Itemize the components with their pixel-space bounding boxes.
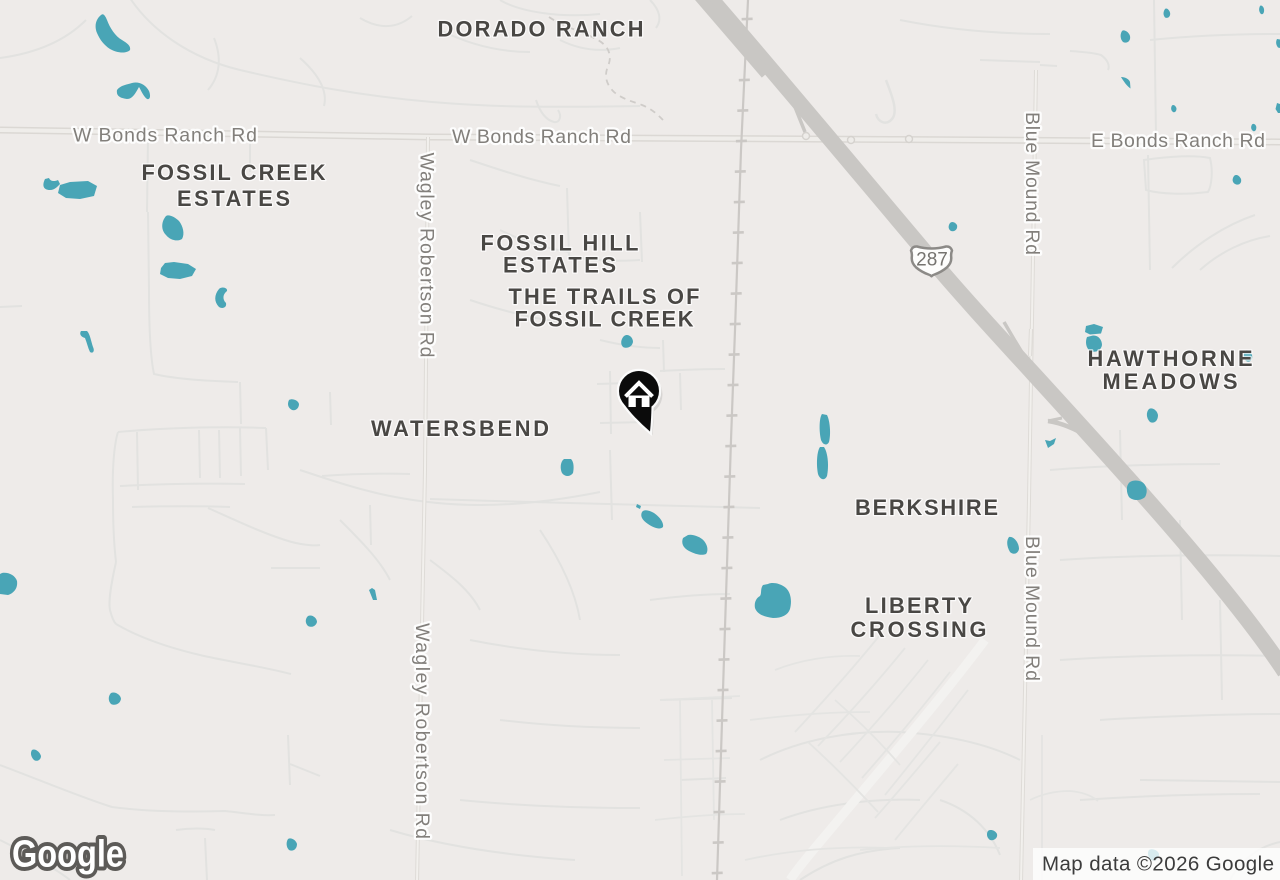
svg-text:THE TRAILS OF: THE TRAILS OF (509, 284, 700, 309)
svg-text:E Bonds Ranch Rd: E Bonds Ranch Rd (1091, 130, 1265, 152)
svg-text:Wagley Robertson Rd: Wagley Robertson Rd (411, 623, 433, 839)
svg-text:Blue Mound Rd: Blue Mound Rd (1021, 536, 1043, 681)
svg-text:W Bonds Ranch Rd: W Bonds Ranch Rd (452, 126, 631, 148)
svg-text:Wagley Robertson Rd: Wagley Robertson Rd (416, 153, 438, 358)
svg-text:W Bonds Ranch Rd: W Bonds Ranch Rd (73, 125, 257, 147)
svg-text:Map data ©2026 Google: Map data ©2026 Google (1042, 853, 1274, 876)
svg-text:DORADO RANCH: DORADO RANCH (438, 17, 644, 42)
svg-text:HAWTHORNE: HAWTHORNE (1088, 346, 1253, 371)
svg-text:BERKSHIRE: BERKSHIRE (855, 495, 998, 520)
svg-text:CROSSING: CROSSING (851, 617, 987, 642)
svg-text:FOSSIL CREEK: FOSSIL CREEK (515, 307, 694, 332)
svg-text:287: 287 (916, 250, 948, 271)
svg-text:Blue Mound Rd: Blue Mound Rd (1021, 112, 1043, 255)
svg-text:Google: Google (12, 834, 124, 876)
svg-text:FOSSIL CREEK: FOSSIL CREEK (142, 160, 326, 185)
